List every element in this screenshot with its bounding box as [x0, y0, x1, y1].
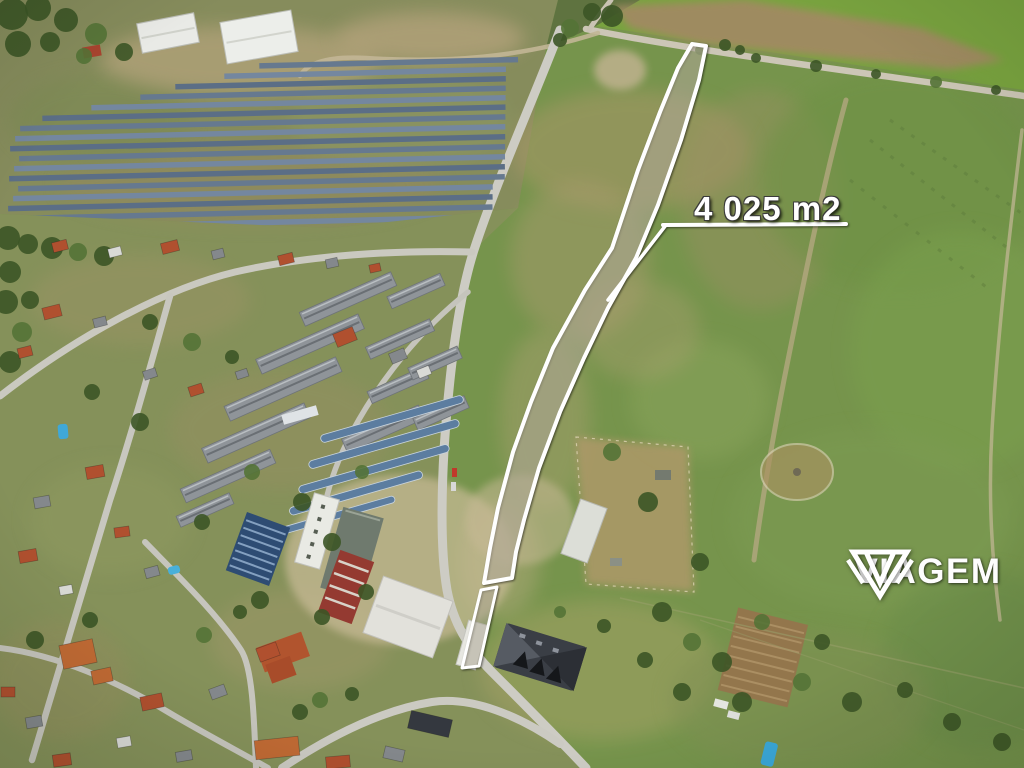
plot-outline-tail — [462, 587, 497, 668]
aerial-listing-photo: 4 025 m2 VIAGEM — [0, 0, 1024, 768]
area-label: 4 025 m2 — [694, 190, 914, 228]
plot-annotation-layer — [0, 0, 1024, 768]
gem-icon — [846, 546, 914, 602]
plot-outline — [484, 44, 706, 583]
brand-watermark: VIAGEM — [846, 546, 1010, 592]
